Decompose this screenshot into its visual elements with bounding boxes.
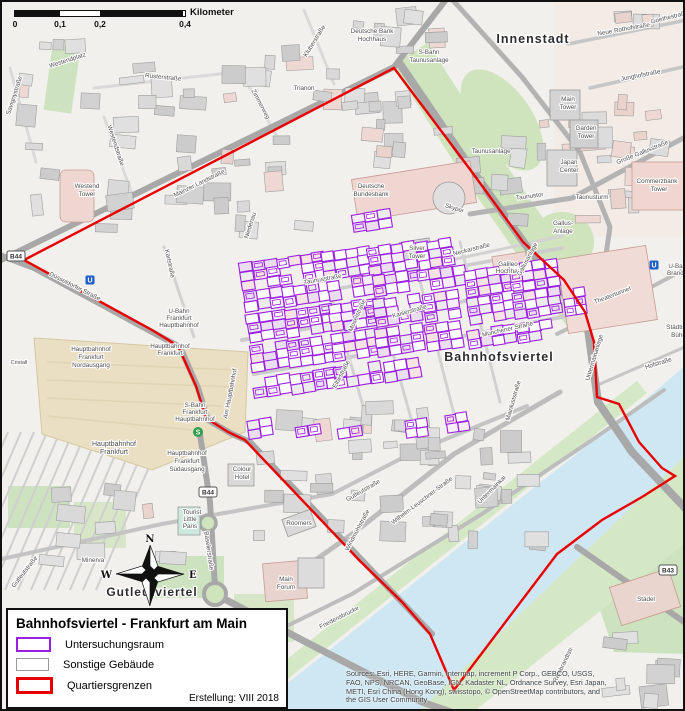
map-label: Südausgang — [169, 466, 205, 473]
map-label: Tower — [560, 104, 577, 111]
road-shield: B44 — [7, 251, 25, 261]
map-label: Roomers — [286, 520, 312, 527]
map-label: Colour — [233, 466, 252, 473]
map-label: U-Bahn — [168, 308, 190, 315]
map-label: Städel — [637, 596, 655, 603]
legend-created-date: Erstellung: VIII 2018 — [189, 693, 279, 704]
map-label: Anlage — [553, 228, 573, 235]
scale-tick: 0 — [13, 19, 18, 29]
map-label: Silver — [409, 245, 425, 252]
legend-title: Bahnhofsviertel - Frankfurt am Main — [16, 616, 278, 631]
svg-text:B44: B44 — [202, 490, 214, 497]
ubahn-marker: U — [650, 261, 659, 270]
map-label: Trianon — [293, 85, 315, 92]
scale-tick: 0,4 — [179, 19, 191, 29]
map-label: S-Bahn — [184, 402, 206, 409]
road-shield: B43 — [659, 565, 677, 575]
svg-text:B44: B44 — [10, 254, 22, 261]
map-label: Galileo — [498, 261, 518, 268]
map-label: Frankfurt — [174, 458, 199, 465]
map-label: Frankfurt — [100, 449, 128, 456]
map-label: Hauptbahnhof — [92, 441, 136, 448]
map-label: Forum — [277, 584, 295, 591]
map-label: Hotel — [235, 474, 250, 481]
map-label: Japan — [560, 159, 578, 166]
map-label: Tower — [578, 133, 595, 140]
legend-swatch-sonstige-gebaeude — [16, 658, 49, 671]
map-label: Tower — [79, 191, 96, 198]
road-shield: B44 — [199, 487, 217, 497]
map-label: Hauptbahnhof — [159, 322, 199, 329]
map-label: Paris — [183, 523, 197, 530]
compass-n: N — [145, 534, 154, 545]
map-label: Hochhaus — [358, 36, 386, 43]
map-label: S-Bahn — [418, 49, 440, 56]
map-label: Brandt-Pl. — [667, 270, 685, 277]
attribution-line: the GIS User Community — [346, 696, 607, 705]
map-label: Taunusturm — [576, 194, 609, 201]
map-label: Garden — [575, 125, 597, 132]
map-label: Gallus- — [553, 220, 573, 227]
map-label: Deutsche Bank — [351, 28, 395, 35]
legend-item-sonstige-gebaeude: Sonstige Gebäude — [16, 658, 278, 671]
map-label: Hauptbahnhof — [175, 416, 215, 423]
legend-swatch-quartiersgrenzen — [16, 677, 53, 694]
map-label: Bühnen — [671, 332, 685, 339]
map-label: Minerva — [82, 557, 105, 564]
map-label: Cristall — [11, 360, 28, 366]
map-label: Tower — [409, 253, 426, 260]
scale-bar-segments — [14, 10, 186, 17]
map-label: Tower — [651, 186, 668, 193]
legend-item-untersuchungsraum: Untersuchungsraum — [16, 637, 278, 652]
map-label: Little — [183, 516, 197, 523]
scale-tick: 0,1 — [54, 19, 66, 29]
map-label: Frankfurt — [166, 315, 191, 322]
map-label: Commerzbank — [637, 178, 679, 185]
map-label: Frankfurt — [182, 409, 207, 416]
district-label: Bahnhofsviertel — [444, 350, 553, 364]
map-label: Westend — [75, 183, 100, 190]
map-label: U-Bahn — [668, 263, 685, 270]
map-canvas[interactable]: WestendplatzRüsterstraßeTrianonZimmerweg… — [2, 2, 685, 711]
map-label: Deutsche — [358, 183, 385, 190]
map-label: Taunusanlage — [471, 148, 511, 155]
legend-label: Untersuchungsraum — [65, 639, 164, 651]
sbahn-marker: S — [193, 427, 203, 437]
legend-item-quartiersgrenzen: Quartiersgrenzen — [16, 677, 278, 694]
ubahn-marker: U — [86, 276, 95, 285]
scale-unit-label: Kilometer — [190, 7, 234, 18]
map-label: Tourist — [183, 509, 202, 516]
map-label: Main — [561, 96, 575, 103]
map-label: Frankfurt — [78, 354, 103, 361]
svg-text:S: S — [196, 430, 201, 437]
legend-label: Sonstige Gebäude — [63, 659, 154, 671]
map-label: Center — [560, 167, 579, 174]
map-label: Hauptbahnhof — [71, 346, 111, 353]
map-label: Hauptbahnhof — [150, 343, 190, 350]
map-label: Nordausgang — [72, 362, 110, 369]
map-label: Hauptbahnhof — [167, 450, 207, 457]
map-label: Frankfurt — [157, 350, 182, 357]
svg-text:U: U — [651, 263, 656, 270]
map-label: Bundesbank — [353, 191, 389, 198]
svg-text:B43: B43 — [662, 568, 674, 575]
map-label: Taunusanlage — [409, 57, 449, 64]
legend-label: Quartiersgrenzen — [67, 680, 152, 692]
district-label: Innenstadt — [496, 32, 569, 46]
map-viewport: WestendplatzRüsterstraßeTrianonZimmerweg… — [0, 0, 685, 711]
map-attribution: Sources: Esri, HERE, Garmin, Intermap, i… — [346, 670, 607, 705]
compass-e: E — [189, 570, 197, 581]
map-label: Main — [279, 576, 293, 583]
legend-swatch-untersuchungsraum — [16, 637, 51, 652]
compass-w: W — [100, 570, 113, 581]
scale-tick: 0,2 — [94, 19, 106, 29]
scale-bar: Kilometer 0 0,1 0,2 0,4 — [10, 6, 260, 32]
svg-text:U: U — [87, 278, 92, 285]
map-label: Städtische — [666, 324, 685, 331]
legend-panel: Bahnhofsviertel - Frankfurt am Main Unte… — [6, 608, 288, 709]
